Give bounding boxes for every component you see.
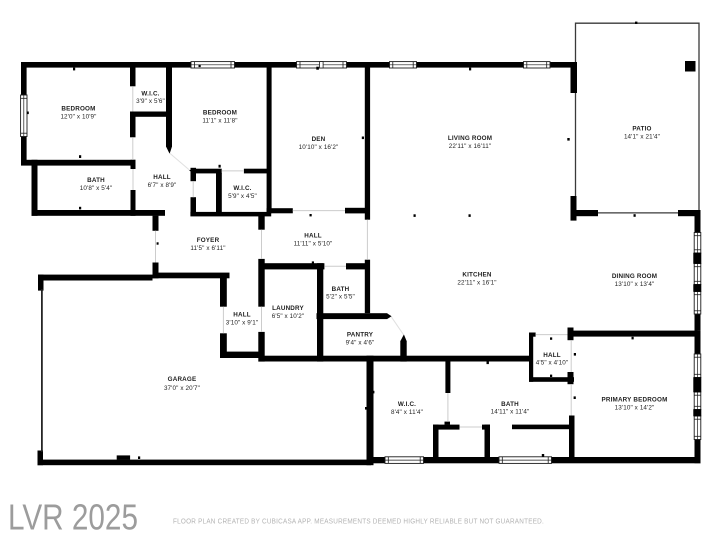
svg-text:PATIO: PATIO bbox=[632, 126, 651, 133]
svg-text:3'9" x 5'6": 3'9" x 5'6" bbox=[136, 98, 165, 105]
svg-text:14'11" x 11'4": 14'11" x 11'4" bbox=[491, 409, 530, 416]
svg-text:5'9" x 4'5": 5'9" x 4'5" bbox=[228, 193, 257, 200]
svg-text:3'10" x 9'1": 3'10" x 9'1" bbox=[226, 320, 258, 327]
svg-text:LVR 2025: LVR 2025 bbox=[8, 497, 138, 538]
svg-text:PRIMARY BEDROOM: PRIMARY BEDROOM bbox=[601, 397, 667, 404]
svg-text:37'0" x 20'7": 37'0" x 20'7" bbox=[164, 385, 200, 392]
svg-text:5'2" x 5'5": 5'2" x 5'5" bbox=[326, 294, 355, 301]
svg-text:W.I.C.: W.I.C. bbox=[233, 185, 251, 192]
svg-text:4'5" x 4'10": 4'5" x 4'10" bbox=[536, 360, 568, 367]
svg-text:HALL: HALL bbox=[543, 352, 561, 359]
svg-text:10'8" x 5'4": 10'8" x 5'4" bbox=[80, 185, 112, 192]
svg-text:W.I.C.: W.I.C. bbox=[398, 401, 416, 408]
svg-text:13'10" x 13'4": 13'10" x 13'4" bbox=[615, 281, 655, 288]
svg-text:13'10" x 14'2": 13'10" x 14'2" bbox=[615, 405, 655, 412]
svg-text:BEDROOM: BEDROOM bbox=[203, 110, 237, 117]
svg-text:FOYER: FOYER bbox=[197, 237, 220, 244]
svg-text:11'5" x 6'11": 11'5" x 6'11" bbox=[190, 245, 225, 252]
svg-text:DINING ROOM: DINING ROOM bbox=[612, 273, 657, 280]
svg-text:BEDROOM: BEDROOM bbox=[61, 106, 95, 113]
svg-text:6'7" x 8'9": 6'7" x 8'9" bbox=[148, 182, 177, 189]
svg-text:9'4" x 4'6": 9'4" x 4'6" bbox=[346, 340, 375, 347]
svg-text:8'4" x 11'4": 8'4" x 11'4" bbox=[391, 409, 423, 416]
svg-text:HALL: HALL bbox=[233, 312, 251, 319]
svg-text:22'11" x 16'1": 22'11" x 16'1" bbox=[457, 280, 496, 287]
svg-text:DEN: DEN bbox=[312, 136, 326, 143]
svg-text:LIVING ROOM: LIVING ROOM bbox=[448, 135, 492, 142]
svg-text:BATH: BATH bbox=[501, 401, 519, 408]
svg-text:11'1" x 11'8": 11'1" x 11'8" bbox=[202, 118, 237, 125]
svg-text:BATH: BATH bbox=[87, 177, 105, 184]
svg-text:GARAGE: GARAGE bbox=[168, 376, 197, 383]
svg-text:12'0" x 10'9": 12'0" x 10'9" bbox=[60, 114, 96, 121]
svg-text:KITCHEN: KITCHEN bbox=[462, 272, 492, 279]
svg-text:W.I.C.: W.I.C. bbox=[141, 91, 159, 98]
svg-text:LAUNDRY: LAUNDRY bbox=[272, 305, 304, 312]
svg-text:HALL: HALL bbox=[304, 233, 322, 240]
svg-text:PANTRY: PANTRY bbox=[347, 332, 374, 339]
svg-text:BATH: BATH bbox=[332, 286, 350, 293]
svg-text:HALL: HALL bbox=[153, 174, 171, 181]
svg-text:14'1" x 21'4": 14'1" x 21'4" bbox=[624, 134, 660, 141]
svg-text:6'5" x 10'2": 6'5" x 10'2" bbox=[272, 313, 304, 320]
svg-text:10'10" x 16'2": 10'10" x 16'2" bbox=[299, 144, 339, 151]
svg-text:22'11" x 16'11": 22'11" x 16'11" bbox=[449, 143, 491, 150]
svg-text:FLOOR PLAN CREATED BY CUBICASA: FLOOR PLAN CREATED BY CUBICASA APP. MEAS… bbox=[173, 519, 544, 526]
svg-text:11'11" x 5'10": 11'11" x 5'10" bbox=[294, 241, 333, 248]
